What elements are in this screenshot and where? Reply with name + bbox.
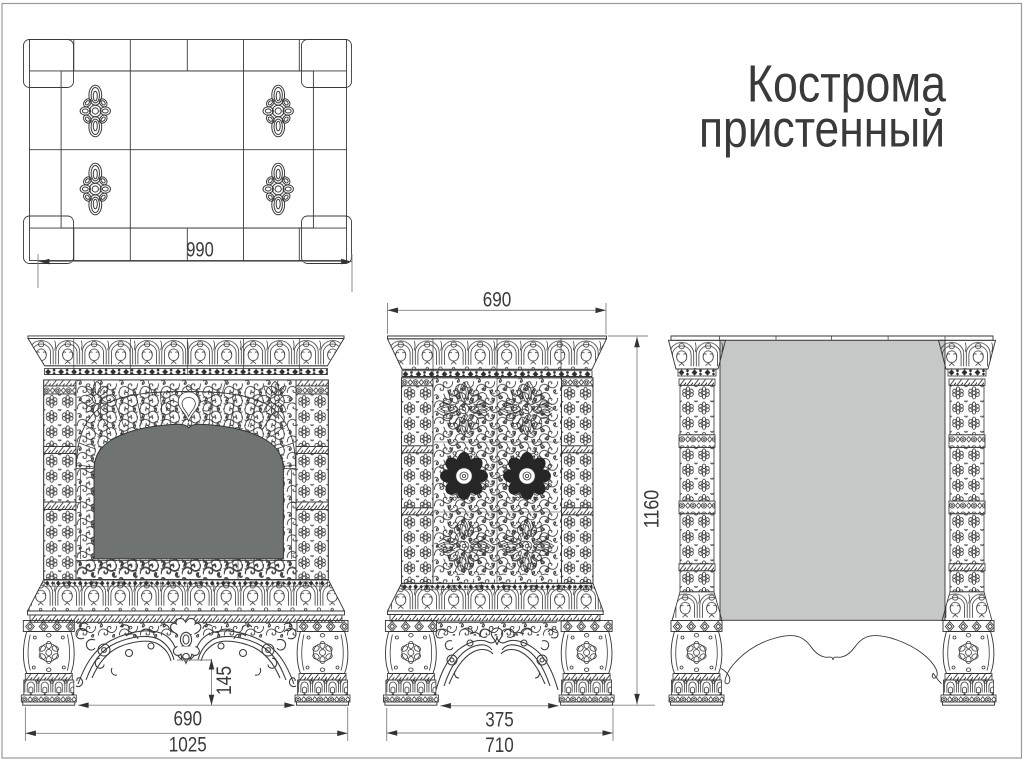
svg-text:375: 375: [485, 708, 514, 732]
svg-text:145: 145: [212, 666, 236, 695]
svg-text:690: 690: [174, 706, 203, 730]
svg-text:990: 990: [186, 238, 214, 262]
svg-text:пристенный: пристенный: [699, 100, 945, 158]
svg-text:710: 710: [485, 733, 514, 757]
svg-text:1025: 1025: [169, 732, 207, 756]
svg-text:690: 690: [483, 288, 512, 312]
svg-text:1160: 1160: [640, 490, 664, 529]
